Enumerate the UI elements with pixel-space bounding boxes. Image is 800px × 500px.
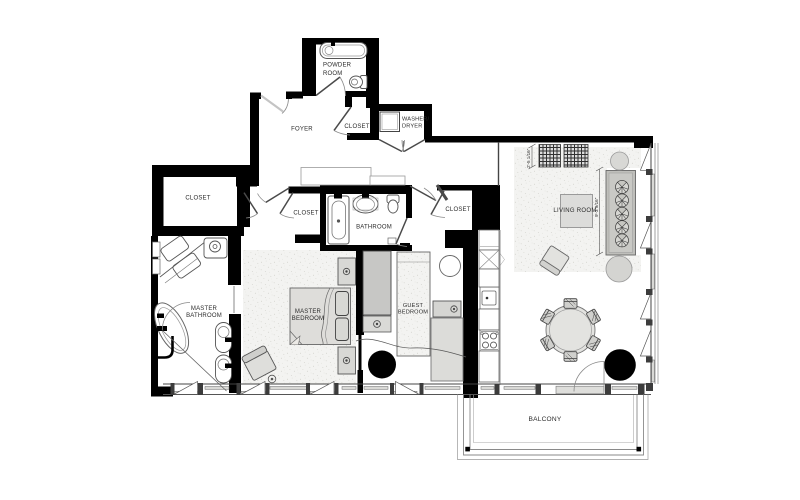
svg-text:MASTER: MASTER bbox=[295, 309, 322, 315]
svg-text:BEDROOM: BEDROOM bbox=[398, 310, 428, 316]
svg-text:BATHROOM: BATHROOM bbox=[356, 225, 392, 231]
svg-text:CLOSET: CLOSET bbox=[344, 124, 369, 130]
svg-text:2'-5 1/16": 2'-5 1/16" bbox=[526, 148, 531, 168]
svg-text:POWDER: POWDER bbox=[323, 63, 352, 69]
svg-text:CLOSET: CLOSET bbox=[185, 196, 210, 202]
svg-text:CLOSET: CLOSET bbox=[293, 211, 318, 217]
svg-text:WASHER/: WASHER/ bbox=[402, 117, 430, 123]
svg-text:DRYER: DRYER bbox=[402, 124, 422, 130]
svg-text:BALCONY: BALCONY bbox=[529, 416, 562, 423]
svg-text:GUEST: GUEST bbox=[403, 303, 424, 309]
svg-text:ROOM: ROOM bbox=[323, 71, 342, 77]
svg-text:BEDROOM: BEDROOM bbox=[292, 316, 324, 322]
svg-text:CLOSET: CLOSET bbox=[445, 207, 470, 213]
svg-text:LIVING ROOM: LIVING ROOM bbox=[553, 208, 596, 214]
svg-text:MASTER: MASTER bbox=[191, 306, 218, 312]
svg-text:FOYER: FOYER bbox=[291, 127, 313, 133]
svg-text:BATHROOM: BATHROOM bbox=[186, 313, 222, 319]
